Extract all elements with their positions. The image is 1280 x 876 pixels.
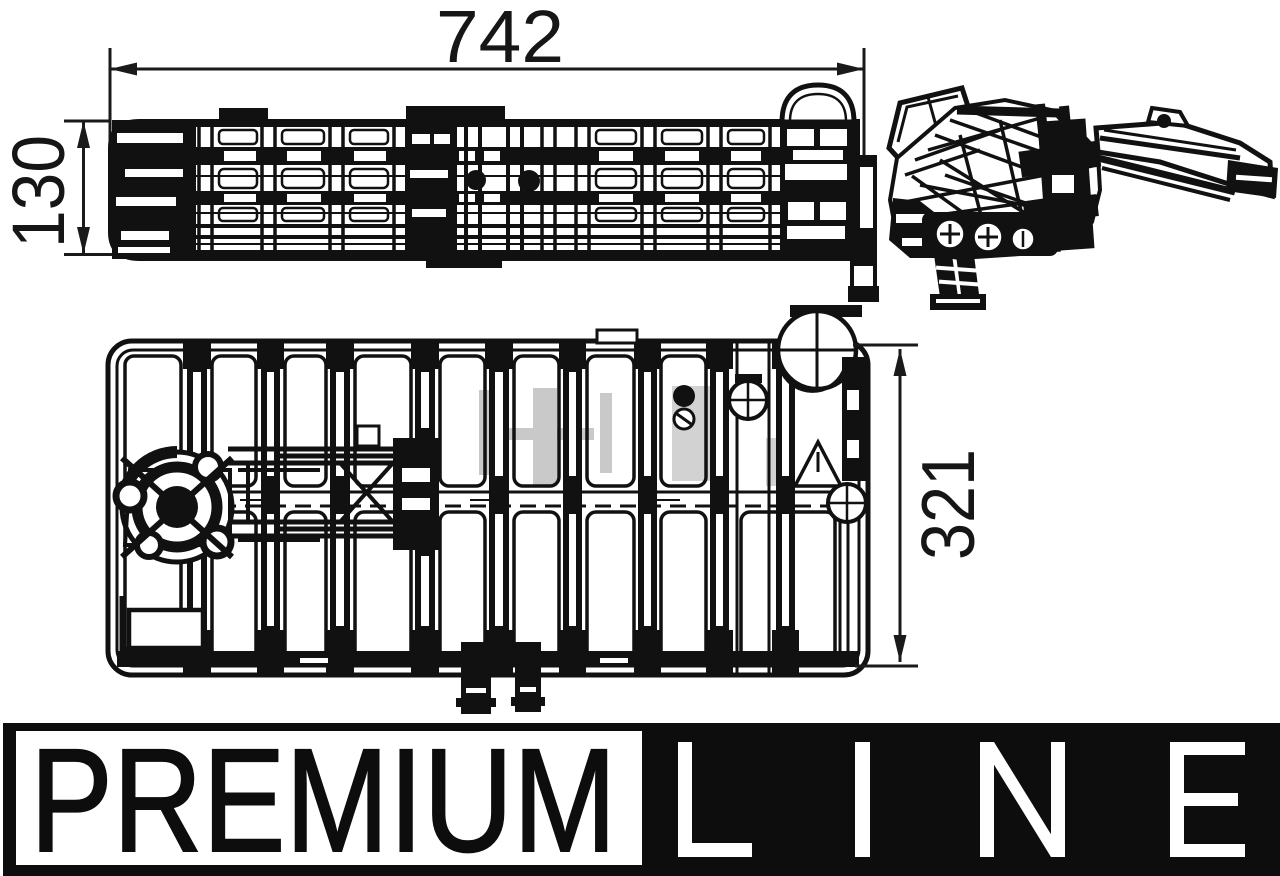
svg-text:PREMIUM: PREMIUM (30, 718, 617, 876)
svg-text:321: 321 (906, 449, 990, 560)
svg-text:130: 130 (0, 135, 80, 248)
svg-text:742: 742 (436, 0, 564, 78)
